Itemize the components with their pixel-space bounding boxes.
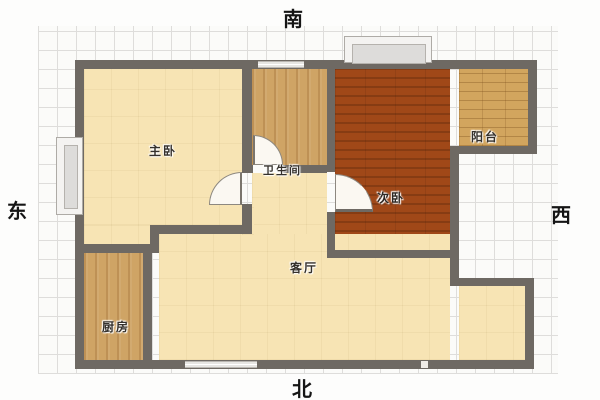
wall-second-bedroom-bottom: [327, 250, 459, 258]
balcony-label: 阳台: [471, 128, 499, 145]
living-room-floor-extension: [459, 286, 525, 360]
top-bay-window: [344, 36, 432, 63]
wall-extension-right: [525, 278, 534, 369]
left-bay-window: [56, 137, 83, 215]
second-bedroom-label: 次卧: [377, 189, 405, 206]
bottom-wall-entry-gap: [421, 361, 428, 368]
wall-bottom: [75, 360, 534, 369]
wall-bathroom-right: [327, 60, 335, 172]
kitchen-label: 厨房: [102, 318, 130, 335]
floor-plan-canvas: 主卧 卫生间 次卧 阳台 客厅 厨房 南 北 东 西: [0, 0, 600, 400]
wall-bathroom-bottom-left: [242, 165, 253, 173]
bathroom-label: 卫生间: [263, 162, 302, 178]
top-wall-window: [258, 61, 304, 68]
wall-balcony-right: [528, 60, 537, 154]
wall-mid-right: [450, 146, 459, 286]
kitchen-floor: [84, 253, 143, 360]
wall-balcony-bottom: [450, 146, 537, 154]
compass-east-label: 东: [7, 195, 27, 224]
wall-extension-top: [450, 278, 534, 286]
compass-west-label: 西: [551, 199, 571, 228]
living-room-label: 客厅: [290, 259, 318, 276]
master-bedroom-label: 主卧: [149, 142, 177, 159]
wall-top: [75, 60, 537, 69]
wall-kitchen-top: [75, 244, 159, 253]
wall-master-right-upper: [242, 60, 252, 172]
second-bedroom-floor: [335, 68, 450, 250]
bottom-wall-window: [185, 361, 257, 368]
wall-kitchen-right: [143, 253, 152, 360]
compass-south-label: 南: [283, 3, 303, 32]
wall-master-bottom: [150, 225, 252, 234]
compass-north-label: 北: [292, 373, 312, 400]
